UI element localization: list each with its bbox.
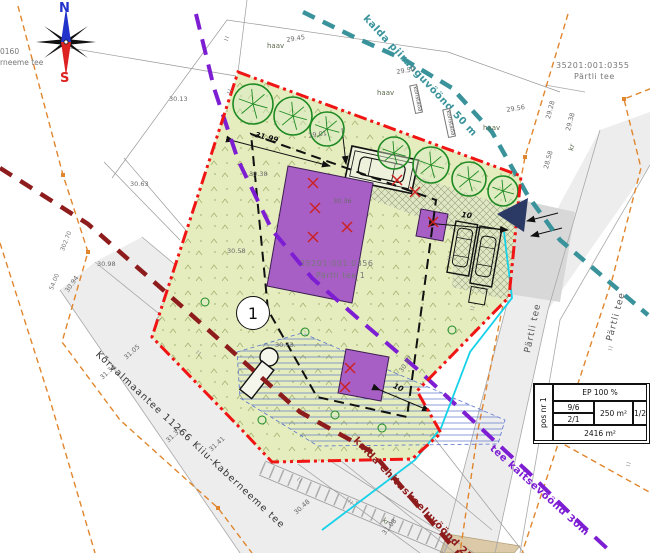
table-ep-cell: EP 100 %	[553, 384, 647, 401]
clipped-parcel-code: 0160	[0, 48, 19, 56]
tree-symbol	[452, 162, 486, 196]
tree-symbol	[274, 97, 312, 135]
elevation-label: 30.73	[275, 342, 294, 349]
table-storeys-cell: 9/6	[553, 401, 594, 413]
elevation-label: 30.13	[169, 96, 188, 103]
elevation-label: 30.38	[249, 171, 268, 178]
table-plot-area-cell: 2416 m²	[553, 425, 647, 441]
clipped-parcel-name: rneeme tee	[0, 59, 43, 67]
parcel-code-0356: 35201:001:0356	[300, 260, 373, 268]
table-buildings-cell: 2/1	[553, 413, 594, 425]
parcel-name-0356: Pärtli tee 1	[316, 272, 365, 280]
tree-symbol	[488, 176, 518, 206]
vegetation-note: haav	[267, 43, 284, 50]
tree-symbol	[233, 84, 273, 124]
tree-symbol	[258, 416, 266, 424]
tree-symbol	[310, 112, 344, 146]
position-number: 1	[248, 304, 258, 323]
table-building-area-cell: 250 m²	[594, 401, 633, 425]
parcel-name-0355: Pärtli tee	[574, 73, 615, 81]
table-ratio-cell: 1/2	[633, 401, 647, 425]
site-plan-canvas: N S 0160 rneeme tee 35201:001:0355 Pärtl…	[0, 0, 650, 553]
tree-symbol	[378, 424, 386, 432]
planned-building-secondary	[338, 349, 389, 401]
tree-symbol	[378, 137, 410, 169]
tree-symbol	[201, 298, 209, 306]
tree-symbol	[301, 328, 309, 336]
tree-symbol	[331, 411, 339, 419]
tree-symbol	[413, 147, 449, 183]
vegetation-note: haav	[377, 90, 394, 97]
elevation-label: 30.63	[130, 181, 149, 188]
position-number-marker: 1	[236, 296, 270, 330]
compass-south-label: S	[60, 72, 69, 85]
vegetation-note: haav	[483, 125, 500, 132]
tree-symbol	[448, 326, 456, 334]
elevation-label: 30.36	[333, 198, 352, 205]
table-pos-cell: pos nr 1	[534, 384, 553, 441]
plot-info-table: pos nr 1 EP 100 % 9/6 2/1 250 m² 1/2 241…	[533, 383, 650, 444]
parcel-code-0355: 35201:001:0355	[556, 62, 629, 70]
elevation-label: 30.58	[227, 248, 246, 255]
compass-rose	[36, 8, 96, 76]
dimension-label: 10	[461, 211, 472, 220]
elevation-label: 30.98	[97, 261, 116, 268]
compass-north-label: N	[59, 2, 70, 15]
